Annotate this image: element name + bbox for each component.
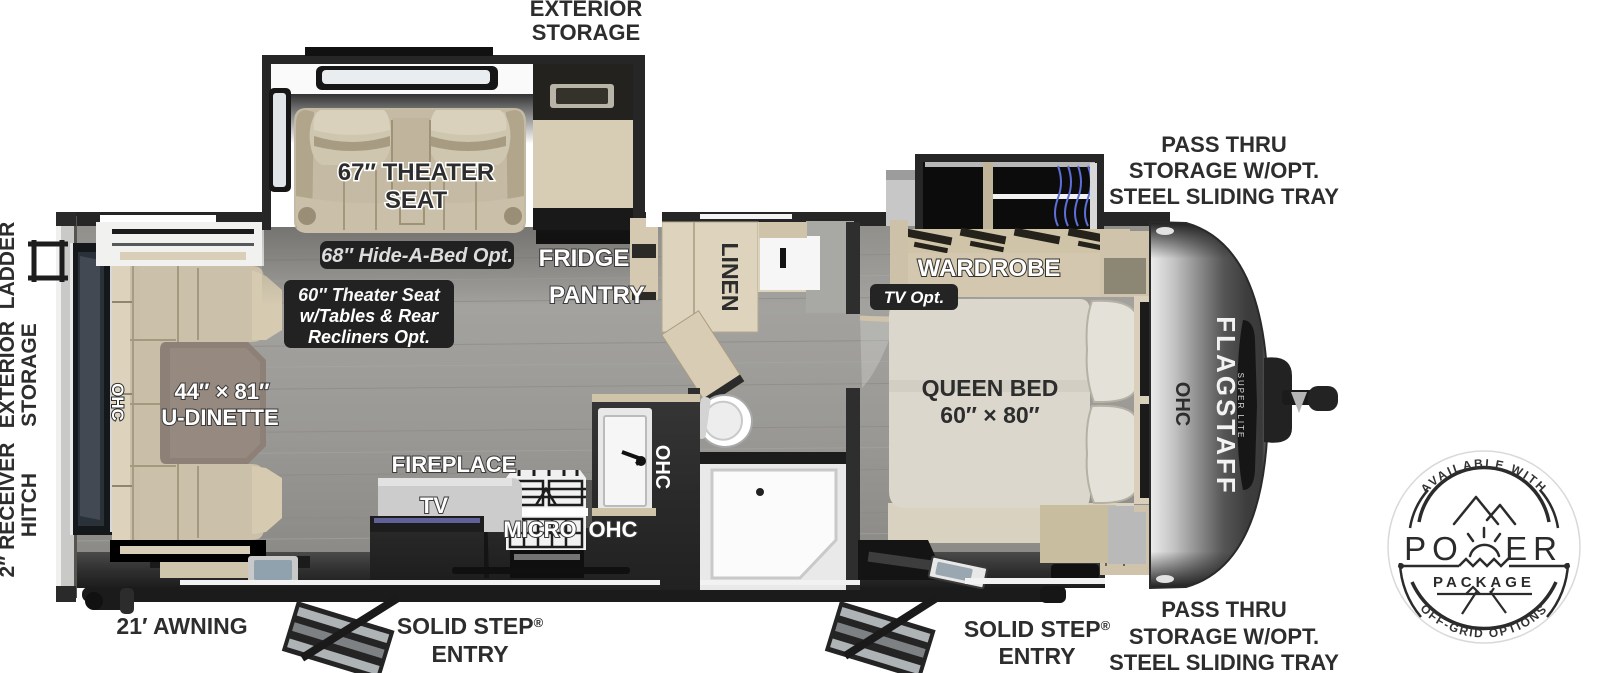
svg-text:SOLID STEP®: SOLID STEP® xyxy=(964,616,1111,642)
svg-text:OHC: OHC xyxy=(1171,382,1193,426)
svg-text:21′ AWNING: 21′ AWNING xyxy=(116,613,247,639)
svg-text:SUPER LITE: SUPER LITE xyxy=(1236,373,1245,440)
svg-text:TV Opt.: TV Opt. xyxy=(884,288,944,307)
svg-text:PACKAGE: PACKAGE xyxy=(1433,574,1535,591)
svg-text:FIREPLACE: FIREPLACE xyxy=(392,452,517,477)
svg-text:WARDROBE: WARDROBE xyxy=(918,255,1061,282)
svg-text:STORAGE: STORAGE xyxy=(532,20,640,45)
svg-text:ENTRY: ENTRY xyxy=(431,641,508,667)
svg-text:w/Tables & Rear: w/Tables & Rear xyxy=(300,306,439,326)
svg-text:STORAGE W/OPT.: STORAGE W/OPT. xyxy=(1129,624,1319,649)
svg-text:PANTRY: PANTRY xyxy=(549,282,645,309)
svg-text:STEEL SLIDING TRAY: STEEL SLIDING TRAY xyxy=(1109,650,1339,673)
svg-text:67″ THEATER: 67″ THEATER xyxy=(338,159,494,186)
svg-text:2″ RECEIVER: 2″ RECEIVER xyxy=(0,443,19,578)
svg-text:44″ × 81″: 44″ × 81″ xyxy=(174,379,270,404)
svg-text:QUEEN BED: QUEEN BED xyxy=(922,375,1059,401)
svg-text:OHC: OHC xyxy=(589,517,638,542)
svg-text:SEAT: SEAT xyxy=(385,187,448,214)
svg-text:SOLID STEP®: SOLID STEP® xyxy=(397,613,544,639)
svg-text:STORAGE W/OPT.: STORAGE W/OPT. xyxy=(1129,158,1319,183)
svg-text:STORAGE: STORAGE xyxy=(18,323,41,426)
svg-text:Recliners Opt.: Recliners Opt. xyxy=(308,327,430,347)
svg-text:HITCH: HITCH xyxy=(18,473,41,537)
svg-text:STEEL SLIDING TRAY: STEEL SLIDING TRAY xyxy=(1109,184,1339,209)
svg-text:LINEN: LINEN xyxy=(717,243,743,312)
svg-text:TV: TV xyxy=(420,493,448,518)
svg-text:ER: ER xyxy=(1505,530,1563,567)
svg-text:EXTERIOR: EXTERIOR xyxy=(530,0,643,21)
svg-text:FRIDGE: FRIDGE xyxy=(539,245,630,272)
svg-text:U-DINETTE: U-DINETTE xyxy=(161,405,278,430)
svg-text:EXTERIOR LADDER: EXTERIOR LADDER xyxy=(0,222,19,429)
svg-text:60″ × 80″: 60″ × 80″ xyxy=(940,402,1039,428)
svg-text:ENTRY: ENTRY xyxy=(998,643,1075,669)
svg-text:OHC: OHC xyxy=(108,383,127,421)
svg-text:MICRO: MICRO xyxy=(503,517,576,542)
svg-text:OHC: OHC xyxy=(651,445,673,489)
svg-text:PO: PO xyxy=(1404,530,1464,567)
svg-text:PASS THRU: PASS THRU xyxy=(1161,132,1287,157)
svg-text:PASS THRU: PASS THRU xyxy=(1161,597,1287,622)
